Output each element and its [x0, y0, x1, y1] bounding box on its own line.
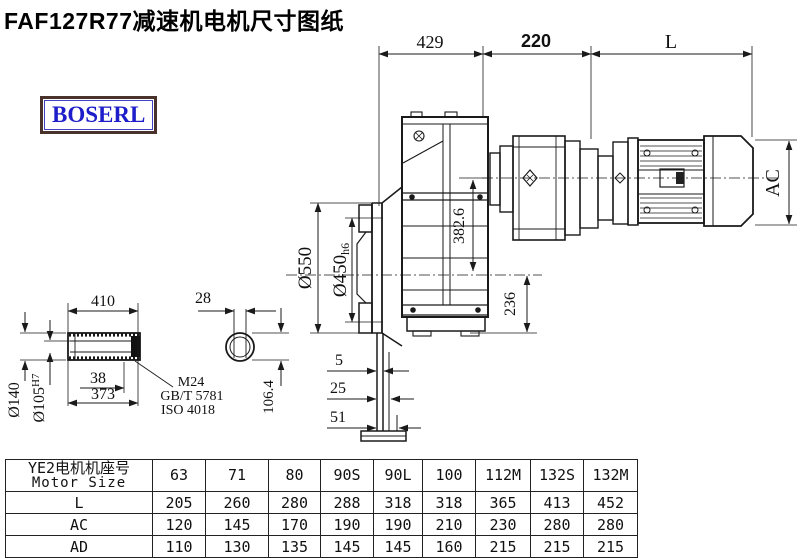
table-column-header: 90S [321, 460, 374, 492]
table-cell: 318 [423, 492, 476, 514]
label-std-gb: GB/T 5781 [160, 389, 223, 404]
table-cell: 210 [423, 514, 476, 536]
table-row: AC120145170190190210230280280 [6, 514, 638, 536]
table-cell: 413 [531, 492, 584, 514]
dim-dia450: Ø450h6 [330, 243, 352, 297]
table-column-header: 90L [374, 460, 423, 492]
label-std-iso: ISO 4018 [161, 403, 215, 418]
table-header-motor-size: YE2电机机座号Motor Size [6, 460, 153, 492]
table-row: L205260280288318318365413452 [6, 492, 638, 514]
dim-dia550: Ø550 [295, 247, 316, 289]
table-cell: 280 [584, 514, 638, 536]
table-cell: 145 [206, 514, 269, 536]
motor-size-table: YE2电机机座号Motor Size63718090S90L100112M132… [5, 459, 638, 558]
motor-body [482, 136, 779, 226]
dim-AC: AC [762, 169, 784, 197]
table-column-header: 132S [531, 460, 584, 492]
table-row-label: L [6, 492, 153, 514]
dim-220: 220 [521, 31, 551, 51]
table-cell: 288 [321, 492, 374, 514]
dimension-flange-diameters: Ø550 Ø450h6 [295, 203, 383, 333]
table-cell: 110 [153, 536, 206, 558]
dim-373: 373 [91, 386, 115, 403]
table-cell: 160 [423, 536, 476, 558]
table-row-label: AD [6, 536, 153, 558]
dimension-foot-offsets: 5 25 51 [327, 352, 421, 428]
hollow-shaft-view: 410 Ø140 Ø105H7 38 373 M24 GB/T 5781 ISO… [6, 293, 224, 423]
dim-28: 28 [195, 290, 211, 307]
dim-38: 38 [90, 370, 106, 387]
dim-429: 429 [417, 32, 444, 52]
table-column-header: 63 [153, 460, 206, 492]
dim-5: 5 [335, 352, 343, 369]
table-cell: 215 [584, 536, 638, 558]
table-cell: 452 [584, 492, 638, 514]
dim-51: 51 [330, 409, 346, 426]
reducer-stage [490, 136, 628, 240]
dim-106-4: 106.4 [261, 380, 277, 414]
dim-382-6: 382.6 [451, 208, 468, 244]
table-cell: 170 [269, 514, 321, 536]
dim-dia140: Ø140 [6, 382, 23, 418]
table-cell: 145 [374, 536, 423, 558]
table-cell: 260 [206, 492, 269, 514]
technical-drawing: 429 220 L [0, 0, 800, 460]
dimension-AC: AC [755, 140, 797, 225]
table-column-header: 71 [206, 460, 269, 492]
table-cell: 280 [269, 492, 321, 514]
table-cell: 215 [531, 536, 584, 558]
dim-25: 25 [330, 380, 346, 397]
table-cell: 205 [153, 492, 206, 514]
table-cell: 280 [531, 514, 584, 536]
table-cell: 120 [153, 514, 206, 536]
table-cell: 230 [476, 514, 531, 536]
dimension-vertical-offsets: 382.6 236 [451, 178, 537, 333]
table-cell: 145 [321, 536, 374, 558]
gearbox-housing [402, 112, 488, 336]
table-cell: 135 [269, 536, 321, 558]
table-column-header: 80 [269, 460, 321, 492]
dim-dia105: Ø105H7 [30, 373, 48, 423]
table-cell: 190 [374, 514, 423, 536]
table-row-label: AC [6, 514, 153, 536]
table-cell: 318 [374, 492, 423, 514]
dim-L: L [665, 31, 677, 53]
table-cell: 215 [476, 536, 531, 558]
table-header-en: Motor Size [6, 476, 152, 491]
table-cell: 365 [476, 492, 531, 514]
dim-410: 410 [91, 293, 115, 310]
table-cell: 190 [321, 514, 374, 536]
table-row: AD110130135145145160215215215 [6, 536, 638, 558]
table-column-header: 112M [476, 460, 531, 492]
table-cell: 130 [206, 536, 269, 558]
table-header-cn: YE2电机机座号 [6, 461, 152, 476]
table-column-header: 132M [584, 460, 638, 492]
label-thread-m24: M24 [178, 375, 204, 390]
dim-236: 236 [502, 292, 519, 316]
table-column-header: 100 [423, 460, 476, 492]
